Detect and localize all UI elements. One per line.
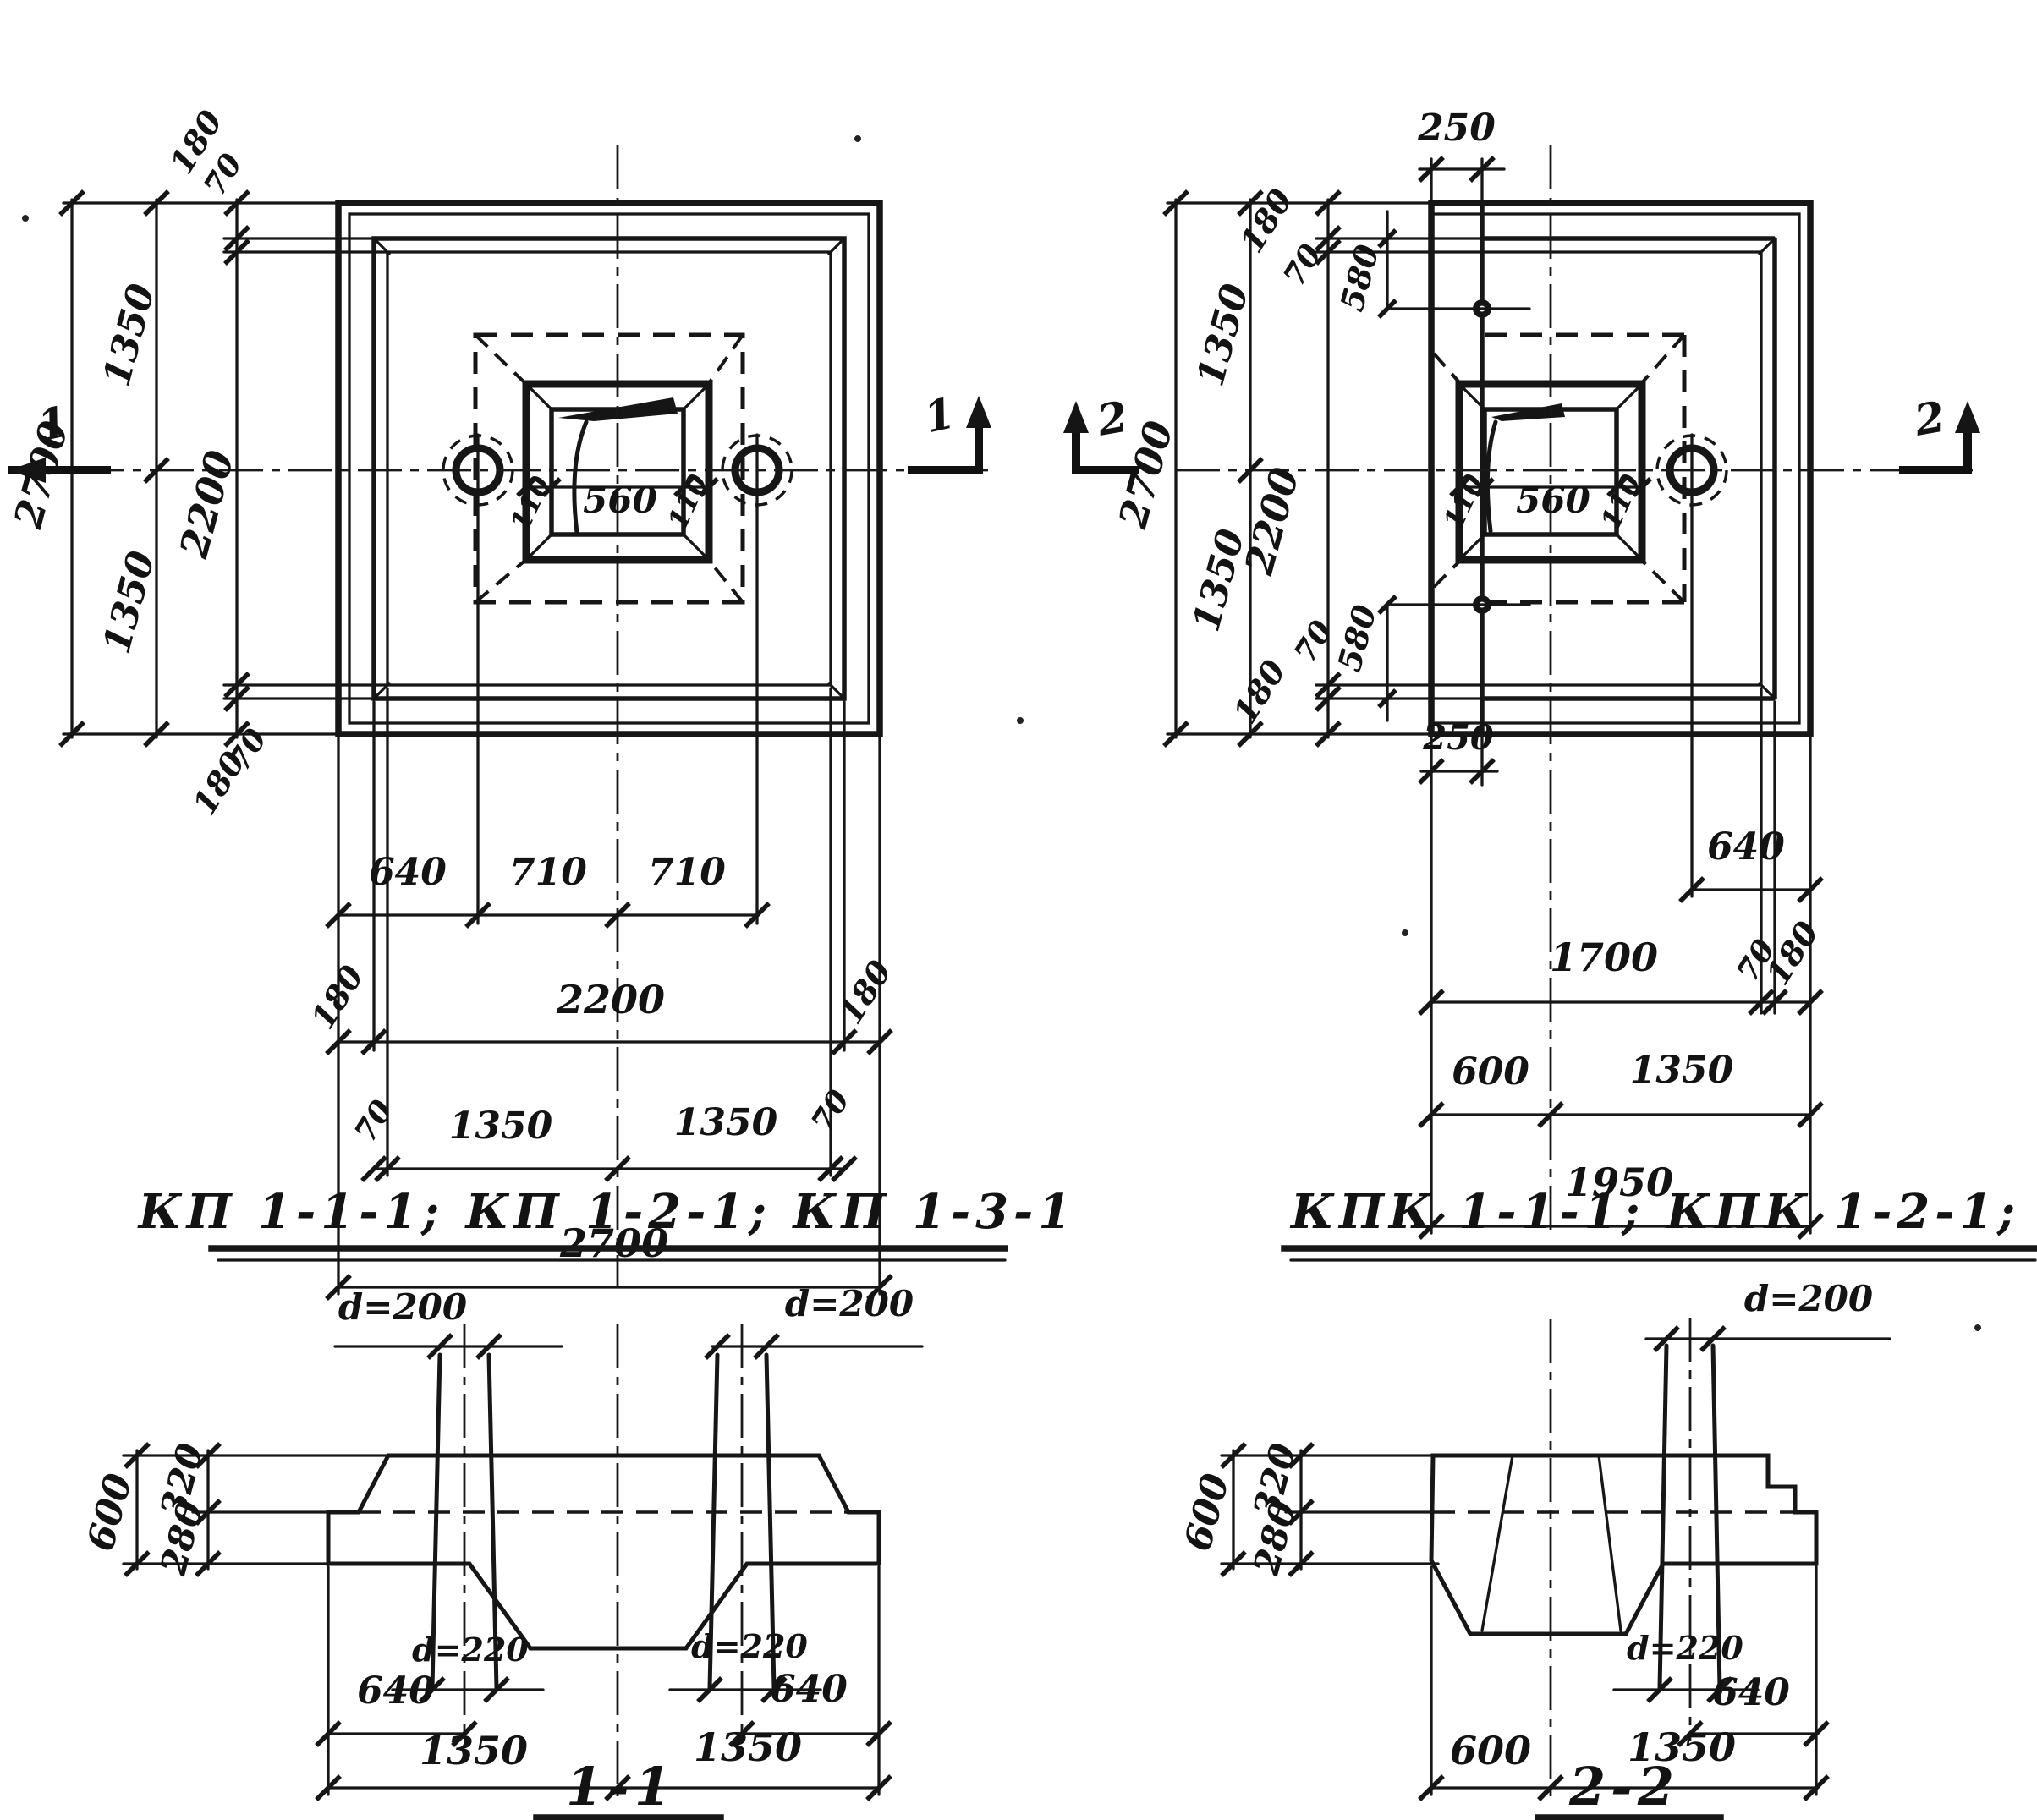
marker-label-1: 1 [920, 387, 958, 442]
plan-right: 110 560 110 250 [1063, 107, 1980, 1238]
dim-2200: 2200 [171, 446, 244, 563]
marker-label-2: 2 [1093, 392, 1131, 446]
dim-d200-left: d=200 [338, 1286, 467, 1328]
section-2-label: 2-2 [1568, 1756, 1679, 1817]
dim-d220-left: d=220 [412, 1631, 529, 1669]
title-plan-left: КП 1-1-1; КП 1-2-1; КП 1-3-1 [137, 1184, 1077, 1260]
section-2-left-dims: 600 320 280 [1176, 1439, 1438, 1580]
dim-1350-top: 1350 [96, 279, 164, 391]
dim-d220-right: d=220 [691, 1627, 808, 1665]
dim-710-right: 710 [648, 851, 726, 894]
dim-1350-right: 1350 [694, 1724, 802, 1770]
plate-inner-border [349, 214, 869, 723]
dim-d200-right: d=200 [785, 1283, 914, 1324]
socket-scribble [1487, 422, 1496, 531]
dim-640: 640 [1707, 825, 1785, 869]
plan-left-dim-chain-bottom: 640 710 710 180 2200 180 70 1350 1350 70… [303, 507, 898, 1299]
marker-label-2: 2 [1910, 392, 1948, 446]
plan-right-socket-dim: 110 560 110 [1437, 469, 1650, 534]
section-1-d200-dims: d=200 d=200 [335, 1283, 922, 1358]
plan-left: 110 560 110 2700 1350 1350 2200 180 70 7… [5, 103, 991, 1299]
plate-outline [338, 203, 880, 734]
section-1-1: d=200 d=200 600 320 280 d=220 d=220 [79, 1283, 922, 1817]
dim-1700: 1700 [1550, 935, 1658, 980]
section-marker-1-right: 1 [912, 387, 991, 470]
section-1-left-dims: 600 320 280 [79, 1439, 388, 1580]
plan-left-title: КП 1-1-1; КП 1-2-1; КП 1-3-1 [137, 1184, 1077, 1240]
dim-560: 560 [1516, 480, 1590, 521]
dim-600: 600 [79, 1469, 140, 1555]
section-2-body [1431, 1455, 1816, 1634]
dim-180-bottom: 180 [1225, 653, 1293, 731]
socket-ink-flaw [1491, 403, 1565, 421]
title-plan-right: КПК 1-1-1; КПК 1-2-1; КПК 1-3-1 [1284, 1184, 2037, 1260]
section-1-label: 1-1 [566, 1756, 676, 1817]
dim-640: 640 [369, 851, 447, 894]
dim-600: 600 [1452, 1050, 1529, 1094]
drawing-canvas: 110 560 110 2700 1350 1350 2200 180 70 7… [0, 0, 2037, 1820]
dim-640-left: 640 [357, 1669, 435, 1713]
dim-250-bottom: 250 [1422, 718, 1494, 758]
dim-1350-left: 1350 [449, 1105, 553, 1148]
dim-2200-bottom: 2200 [556, 977, 665, 1022]
section-marker-2-right: 2 [1903, 392, 1980, 470]
dim-600-part: 600 [1450, 1728, 1531, 1773]
plan-left-dim-chain-left: 2700 1350 1350 2200 180 70 70 180 [5, 103, 387, 822]
dim-1350-right: 1350 [674, 1101, 778, 1144]
section-marker-1-left: 1 [8, 396, 107, 483]
dim-1350-top: 1350 [1189, 279, 1258, 391]
section-arrow-icon [1063, 401, 1089, 433]
section-arrow-icon [1955, 401, 1980, 433]
dim-560: 560 [583, 480, 657, 521]
dim-580-bottom: 580 [1330, 600, 1384, 676]
dim-600: 600 [1176, 1469, 1238, 1555]
dim-70-right: 70 [804, 1083, 857, 1138]
dim-d220: d=220 [1627, 1629, 1743, 1667]
dim-1350-bottom: 1350 [96, 546, 164, 658]
section-2-2: d=200 600 320 280 d=220 [1176, 1278, 1890, 1817]
dim-1350: 1350 [1630, 1049, 1734, 1092]
dim-180-top: 180 [1232, 182, 1299, 260]
plan-left-socket-dim: 110 560 110 [504, 469, 717, 536]
section-2-d200-dim: d=200 [1646, 1278, 1890, 1351]
section-1-d220-dims: d=220 d=220 [393, 1627, 821, 1702]
dim-640: 640 [1712, 1671, 1790, 1714]
plan-right-title: КПК 1-1-1; КПК 1-2-1; КПК 1-3-1 [1289, 1184, 2037, 1240]
dim-640-right: 640 [770, 1668, 848, 1711]
dim-180-right: 180 [831, 953, 898, 1031]
dim-1350-left: 1350 [420, 1728, 528, 1773]
plan-right-dim-chain-left: 2700 1350 1350 2200 180 70 580 70 580 18… [1110, 182, 1482, 746]
dim-710-left: 710 [509, 851, 587, 894]
dim-2200: 2200 [1236, 463, 1309, 580]
section-arrow-icon [966, 396, 991, 428]
dim-250-top: 250 [1417, 107, 1496, 150]
dim-70-left: 70 [348, 1094, 400, 1148]
plan-right-plate [1176, 145, 1973, 1231]
dim-d200: d=200 [1744, 1278, 1873, 1319]
section-marker-2-left: 2 [1063, 392, 1135, 470]
dim-180-left: 180 [303, 958, 371, 1036]
plan-right-dim-top-250: 250 [1417, 107, 1504, 201]
section-1-body [328, 1455, 879, 1648]
